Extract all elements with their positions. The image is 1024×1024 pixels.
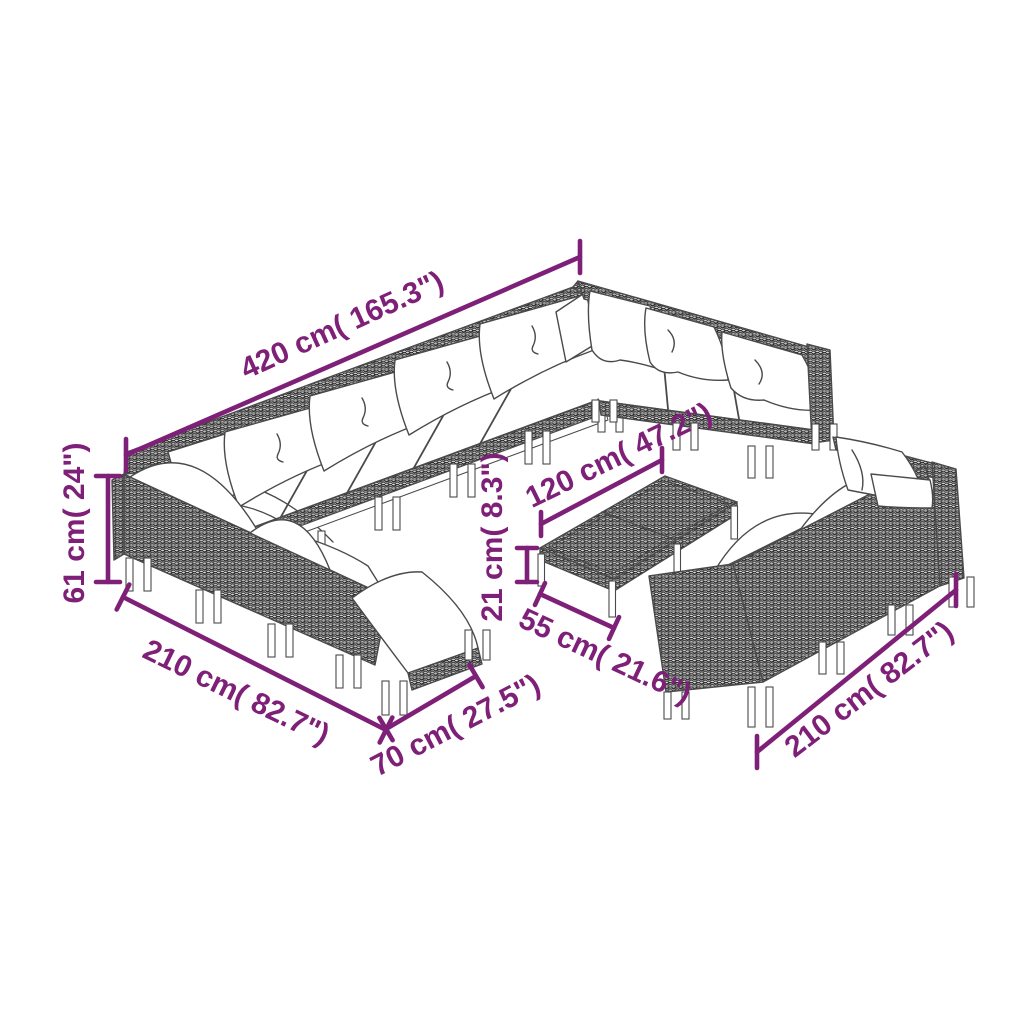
svg-text:21 cm( 8.3"): 21 cm( 8.3") [476, 452, 509, 621]
svg-text:61 cm( 24"): 61 cm( 24") [58, 443, 91, 604]
